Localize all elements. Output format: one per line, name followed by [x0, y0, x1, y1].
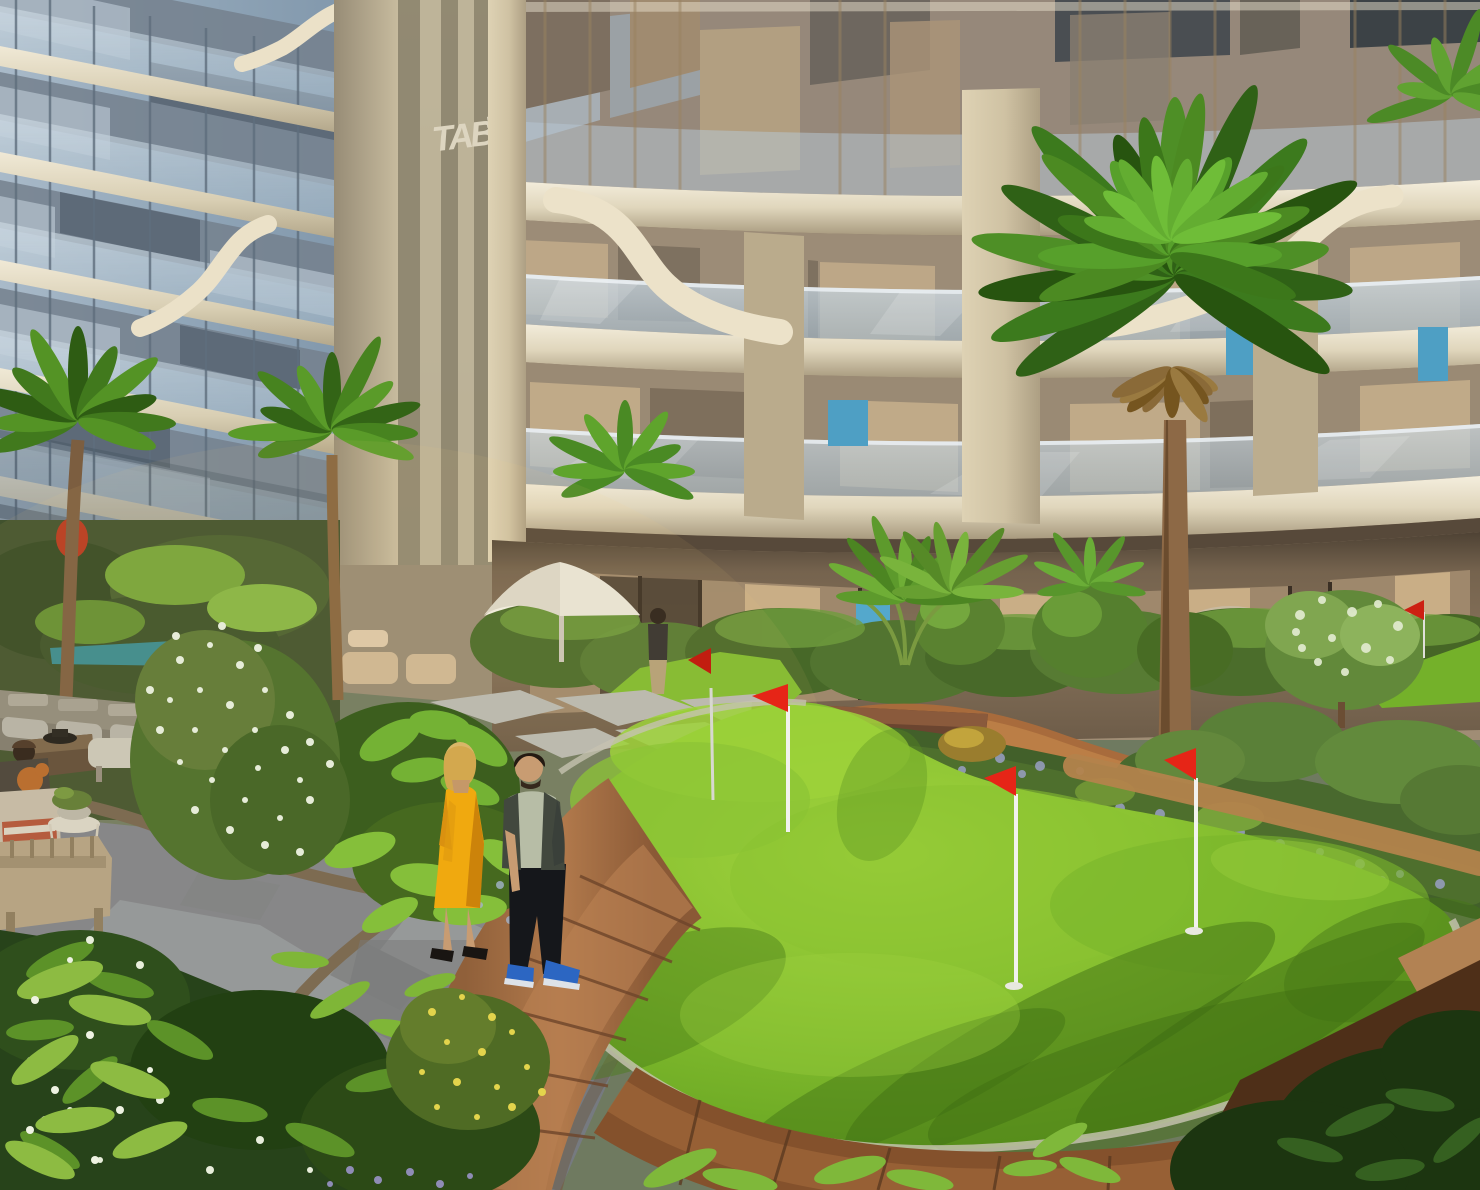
svg-text:TAB: TAB: [430, 113, 496, 159]
